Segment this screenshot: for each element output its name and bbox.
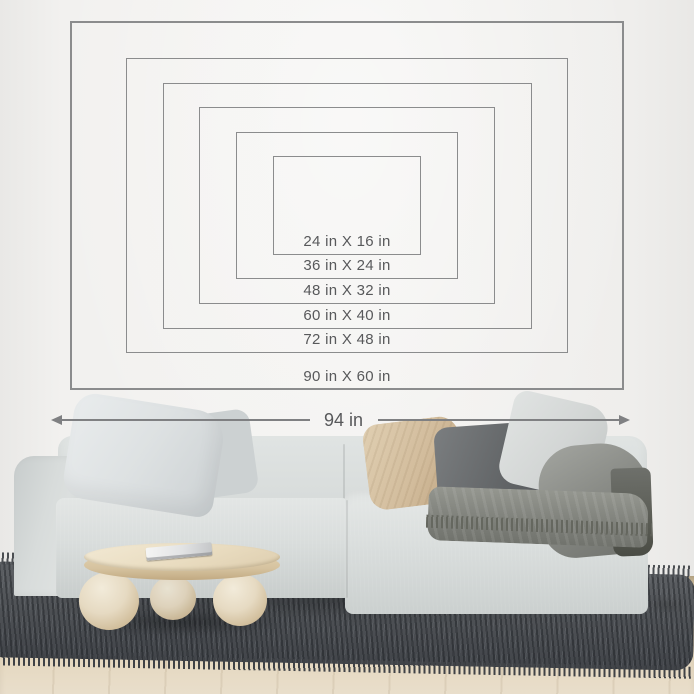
table-ball-foot-right: [213, 574, 267, 626]
table-ball-foot-middle: [150, 576, 196, 620]
sofa-seat-seam: [346, 500, 348, 598]
size-guide-mockup: 94 in 24 in X 16 in36 in X 24 in48 in X …: [0, 0, 694, 694]
table-ball-foot-left: [79, 572, 139, 630]
floor-shadow: [642, 598, 692, 612]
